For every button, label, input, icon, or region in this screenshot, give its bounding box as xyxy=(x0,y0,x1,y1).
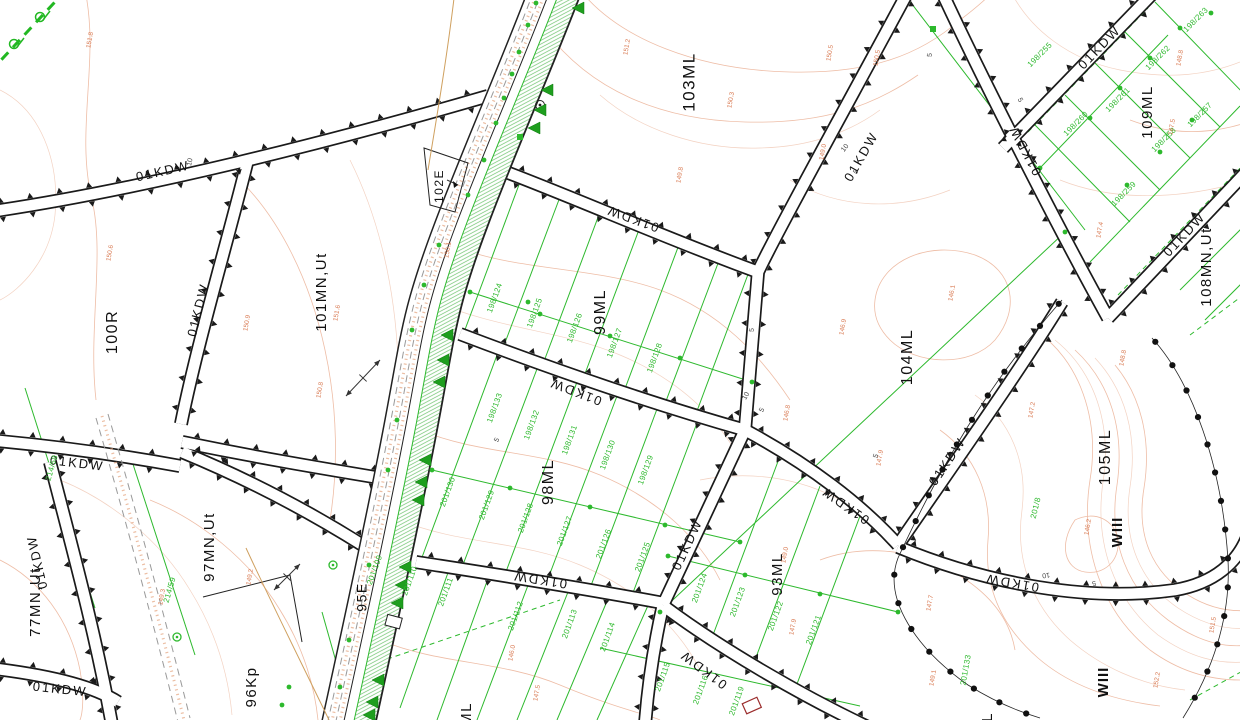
contour-label: 149.8 xyxy=(675,166,685,184)
dim-label: 10 xyxy=(840,143,850,154)
contour-label: 149.2 xyxy=(245,568,255,586)
green-label: 198/255 xyxy=(1026,40,1054,68)
map-viewport[interactable]: 01KDW01KDW01KDW01KDW01KDW01KDW01KDW01KDW… xyxy=(0,0,1240,720)
contour-label: 151.8 xyxy=(85,31,95,49)
parcel-label: ML xyxy=(979,712,996,720)
parcel-label: 99ML xyxy=(592,289,609,335)
road-edge-tick-marks xyxy=(0,0,1240,720)
green-utility-line xyxy=(0,0,66,72)
parcel-label: 98ML xyxy=(540,459,557,505)
green-label: 201/130 xyxy=(438,476,457,508)
road-label: 01KDW xyxy=(984,571,1041,595)
green-label: 198/132 xyxy=(522,409,541,441)
dim-label: 5 xyxy=(749,328,756,333)
contour-label: 150.9 xyxy=(242,314,252,332)
dim-label: 5 xyxy=(1016,97,1024,104)
contour-label: 147.4 xyxy=(1095,221,1105,239)
parcel-label: 101MN,Ut xyxy=(313,252,330,332)
contour-label: 147.2 xyxy=(1027,401,1037,419)
dim-label: 10 xyxy=(1042,571,1051,579)
lot-division-lines-layer xyxy=(25,0,1240,720)
parcel-label: 100R xyxy=(104,310,121,354)
map-window: 01KDW01KDW01KDW01KDW01KDW01KDW01KDW01KDW… xyxy=(0,0,1240,720)
zone-label: WIII xyxy=(1095,667,1112,698)
parcel-label: 103ML xyxy=(679,52,698,111)
green-label: 201/124 xyxy=(690,572,709,604)
green-label: 201/111 xyxy=(436,576,455,607)
parcel-label: 104ML xyxy=(899,329,916,385)
green-label: 198/133 xyxy=(485,392,504,424)
contour-label: 150.5 xyxy=(872,49,882,67)
parcel-label: 96Kp xyxy=(243,666,260,707)
green-label: 198/260 xyxy=(1062,109,1090,137)
contour-label: 147.7 xyxy=(925,594,935,612)
road-centerline-definitions xyxy=(0,0,1240,720)
road-casings-layer xyxy=(0,0,1240,720)
contour-label: 151.2 xyxy=(622,38,632,56)
green-label: 201/129 xyxy=(477,489,496,521)
parcel-label: 97MN,Ut xyxy=(201,512,218,582)
contour-label: 147.9 xyxy=(788,618,798,636)
road-surfaces-layer xyxy=(0,0,1240,720)
road-label: 01KDW xyxy=(841,129,881,184)
green-label: 198/261 xyxy=(1104,85,1132,113)
green-label: 201/133 xyxy=(958,654,972,686)
contour-label: 146.2 xyxy=(1083,518,1093,536)
road-label: 01KDW xyxy=(512,568,568,591)
green-label: 198/263 xyxy=(1182,5,1210,33)
contour-label: 146.9 xyxy=(838,318,848,336)
contour-label: 150.5 xyxy=(825,44,835,62)
green-label: 198/131 xyxy=(560,424,579,456)
parcel-label: ML xyxy=(458,702,475,720)
green-label: 201/123 xyxy=(728,586,747,618)
building-outline xyxy=(742,697,761,714)
parcel-label: 102E xyxy=(432,169,446,203)
green-label: 198/257 xyxy=(1186,100,1214,128)
parcel-label: 77MN,Ut xyxy=(27,567,44,637)
dim-label: 10 xyxy=(186,157,194,166)
green-label: 201/126 xyxy=(594,528,613,560)
parcel-label: 95E xyxy=(354,582,370,611)
green-label: 201/128 xyxy=(516,502,535,534)
green-label: 201/113 xyxy=(560,608,579,640)
green-label: 201/127 xyxy=(555,515,574,547)
parcel-label: 109ML xyxy=(1139,85,1156,138)
zone-boundary-dots xyxy=(891,301,1231,717)
contour-label: 146.8 xyxy=(782,404,792,422)
parcel-label: 105ML xyxy=(1097,429,1114,485)
green-label: 201/121 xyxy=(804,614,823,646)
contour-label: 147.5 xyxy=(532,684,542,702)
contour-label: 149.0 xyxy=(780,546,790,564)
green-label: 201/8 xyxy=(1029,496,1043,519)
contour-label: 149.1 xyxy=(928,669,938,687)
green-label: 198/128 xyxy=(645,342,664,374)
green-label: 201/125 xyxy=(633,541,652,573)
green-label: 201/112 xyxy=(506,600,525,632)
contour-label: 151.6 xyxy=(332,304,342,322)
zone-dotted-boundary xyxy=(894,300,1228,718)
dim-label: 5 xyxy=(1091,579,1096,586)
contour-label: 146.1 xyxy=(947,284,957,302)
contour-label: 146.0 xyxy=(507,644,517,662)
road-label: 01KDW xyxy=(604,203,661,236)
dim-label: 5 xyxy=(758,407,766,414)
green-label: 201/116 xyxy=(691,674,710,706)
contour-label: 150.6 xyxy=(105,244,115,262)
green-label: 201/114 xyxy=(598,621,617,653)
zone-label: WIII xyxy=(1109,517,1126,548)
contour-label: 150.8 xyxy=(315,381,325,399)
contour-label: 148.8 xyxy=(1118,349,1128,367)
contour-label: 151.5 xyxy=(1208,616,1218,634)
dim-label: 5 xyxy=(493,437,501,444)
contour-label: 149.0 xyxy=(818,143,828,161)
wiii-zone-labels: WIIIWIII xyxy=(1095,517,1126,698)
parcel-label: 108MN,Ut xyxy=(1198,227,1215,307)
dim-label: 5 xyxy=(927,53,934,58)
green-label: 198/130 xyxy=(598,439,617,471)
contour-label: 150.3 xyxy=(726,91,736,109)
contour-label: 148.8 xyxy=(1175,49,1185,67)
contour-lines-layer xyxy=(0,0,1240,720)
green-label: 201/122 xyxy=(766,600,785,632)
green-label: 201/119 xyxy=(727,685,746,717)
